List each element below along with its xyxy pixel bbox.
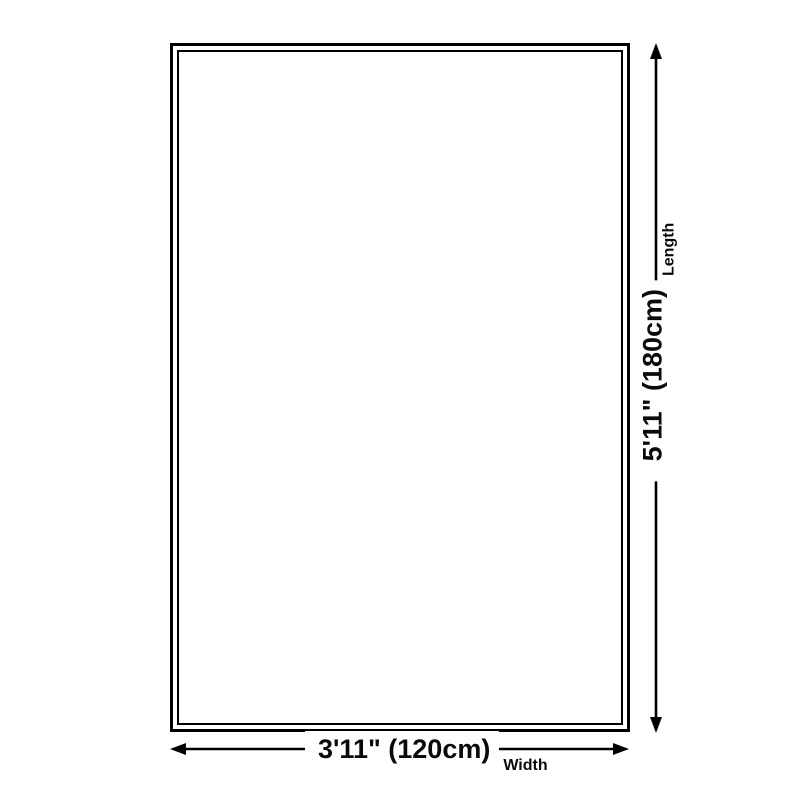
width-caption: Width — [503, 756, 547, 776]
product-outline-outer — [170, 43, 630, 732]
width-dimension-label: 3'11" (120cm) Width — [305, 731, 548, 776]
down-arrow-icon — [650, 717, 662, 733]
length-caption: Length — [660, 223, 680, 276]
length-dimension-label: 5'11" (180cm) Length — [635, 223, 680, 482]
right-arrow-icon — [613, 743, 629, 755]
size-diagram: 5'11" (180cm) Length 3'11" (120cm) Width — [0, 0, 800, 800]
product-outline-inner — [177, 50, 623, 725]
width-value: 3'11" (120cm) — [305, 731, 499, 767]
length-value: 5'11" (180cm) — [635, 280, 671, 481]
